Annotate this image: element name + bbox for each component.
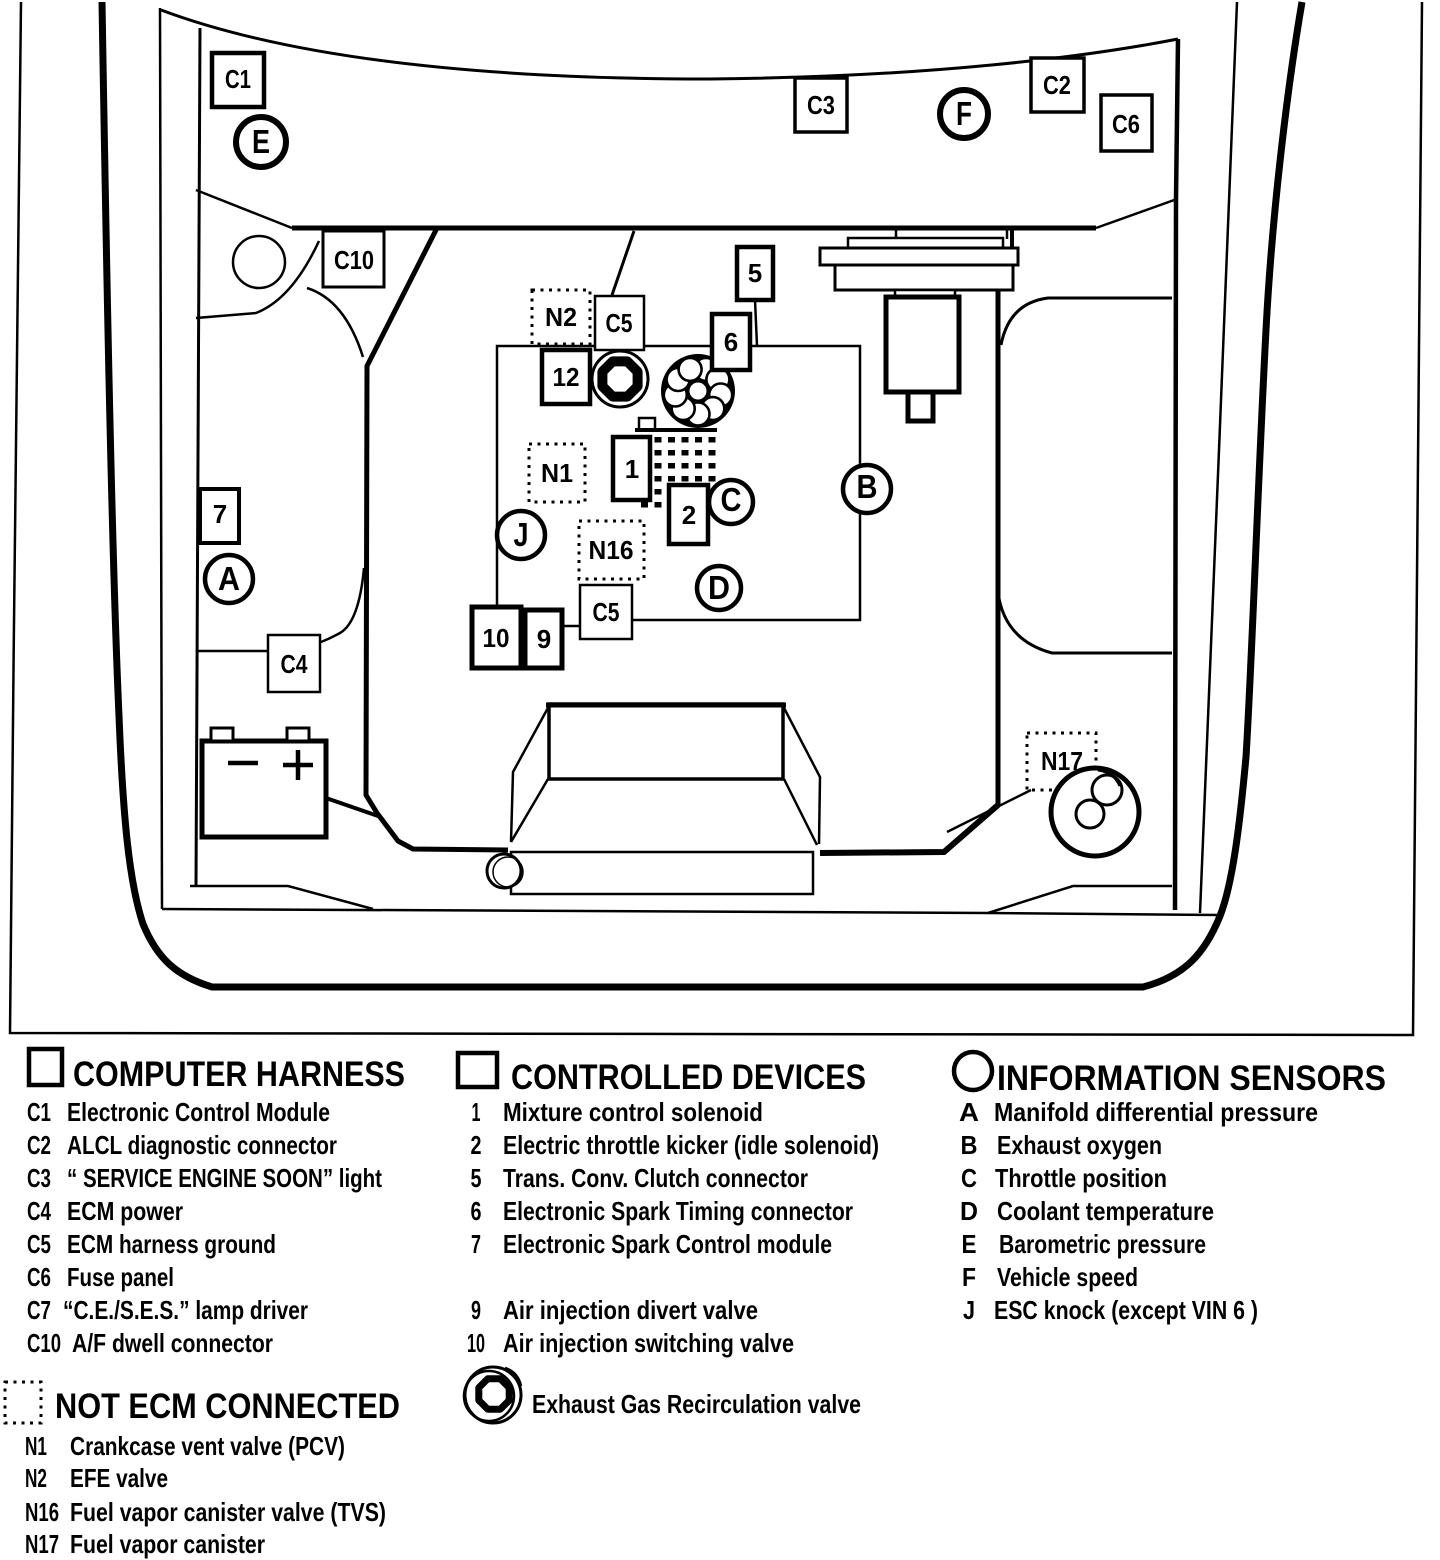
svg-text:2: 2 bbox=[682, 500, 696, 530]
svg-text:N2: N2 bbox=[25, 1463, 47, 1493]
svg-text:C4: C4 bbox=[27, 1196, 51, 1226]
svg-text:D: D bbox=[708, 569, 730, 606]
svg-text:5: 5 bbox=[471, 1163, 482, 1193]
svg-text:C6: C6 bbox=[1112, 109, 1140, 139]
svg-text:C: C bbox=[961, 1163, 977, 1193]
svg-text:Fuse panel: Fuse panel bbox=[67, 1262, 174, 1292]
svg-text:N2: N2 bbox=[545, 302, 577, 332]
svg-text:COMPUTER HARNESS: COMPUTER HARNESS bbox=[73, 1055, 405, 1094]
svg-text:10: 10 bbox=[483, 623, 510, 653]
svg-text:C10: C10 bbox=[334, 245, 374, 275]
svg-text:C3: C3 bbox=[807, 90, 835, 120]
svg-text:7: 7 bbox=[213, 499, 227, 529]
svg-text:E: E bbox=[962, 1229, 977, 1259]
svg-text:A/F dwell connector: A/F dwell connector bbox=[72, 1328, 273, 1358]
svg-text:A: A bbox=[218, 560, 240, 597]
svg-text:12: 12 bbox=[553, 362, 580, 392]
svg-text:2: 2 bbox=[471, 1130, 482, 1160]
svg-text:Coolant temperature: Coolant temperature bbox=[997, 1196, 1214, 1226]
svg-text:Throttle position: Throttle position bbox=[995, 1163, 1167, 1193]
svg-text:A: A bbox=[959, 1097, 979, 1127]
svg-text:E: E bbox=[252, 123, 270, 160]
svg-text:C5: C5 bbox=[593, 597, 620, 627]
svg-text:N17: N17 bbox=[25, 1529, 59, 1559]
svg-text:Electronic Spark Control modul: Electronic Spark Control module bbox=[503, 1229, 832, 1259]
svg-text:C10: C10 bbox=[27, 1328, 61, 1358]
svg-text:5: 5 bbox=[748, 258, 762, 288]
svg-text:N1: N1 bbox=[25, 1431, 47, 1461]
svg-text:7: 7 bbox=[471, 1229, 481, 1259]
svg-text:Air injection switching valve: Air injection switching valve bbox=[503, 1328, 794, 1358]
svg-text:C1: C1 bbox=[27, 1097, 51, 1127]
svg-text:Trans. Conv. Clutch connector: Trans. Conv. Clutch connector bbox=[503, 1163, 808, 1193]
svg-text:C5: C5 bbox=[27, 1229, 51, 1259]
svg-text:Vehicle speed: Vehicle speed bbox=[997, 1262, 1138, 1292]
svg-text:Air injection divert valve: Air injection divert valve bbox=[503, 1295, 758, 1325]
svg-text:Mixture control solenoid: Mixture control solenoid bbox=[503, 1097, 763, 1127]
svg-text:C7: C7 bbox=[27, 1295, 51, 1325]
svg-text:INFORMATION SENSORS: INFORMATION SENSORS bbox=[997, 1059, 1386, 1098]
svg-text:NOT ECM CONNECTED: NOT ECM CONNECTED bbox=[55, 1387, 400, 1426]
svg-text:Electronic Spark Timing connec: Electronic Spark Timing connector bbox=[503, 1196, 853, 1226]
svg-text:C2: C2 bbox=[1043, 70, 1071, 100]
svg-text:Crankcase vent valve (PCV): Crankcase vent valve (PCV) bbox=[70, 1431, 345, 1461]
svg-text:Electric throttle kicker (idle: Electric throttle kicker (idle solenoid) bbox=[503, 1130, 879, 1160]
svg-text:6: 6 bbox=[724, 327, 738, 357]
svg-text:N16: N16 bbox=[589, 535, 634, 565]
svg-text:CONTROLLED DEVICES: CONTROLLED DEVICES bbox=[511, 1058, 866, 1097]
svg-text:“C.E./S.E.S.” lamp driver: “C.E./S.E.S.” lamp driver bbox=[63, 1295, 308, 1325]
svg-text:ALCL diagnostic connector: ALCL diagnostic connector bbox=[67, 1130, 337, 1160]
svg-text:J: J bbox=[963, 1295, 975, 1325]
svg-text:ECM harness ground: ECM harness ground bbox=[67, 1229, 276, 1259]
svg-text:9: 9 bbox=[471, 1295, 481, 1325]
svg-text:N16: N16 bbox=[25, 1497, 59, 1527]
svg-text:ESC knock (except VIN 6 ): ESC knock (except VIN 6 ) bbox=[994, 1295, 1258, 1325]
svg-text:“ SERVICE ENGINE SOON” light: “ SERVICE ENGINE SOON” light bbox=[67, 1163, 382, 1193]
svg-text:J: J bbox=[514, 516, 529, 553]
svg-text:B: B bbox=[857, 468, 878, 505]
svg-text:1: 1 bbox=[625, 454, 639, 484]
svg-text:F: F bbox=[956, 95, 972, 132]
svg-text:N1: N1 bbox=[541, 458, 573, 488]
svg-text:Fuel vapor canister valve (TVS: Fuel vapor canister valve (TVS) bbox=[70, 1497, 386, 1527]
svg-text:F: F bbox=[962, 1262, 976, 1292]
svg-text:1: 1 bbox=[472, 1097, 481, 1127]
svg-text:D: D bbox=[960, 1196, 978, 1226]
svg-text:Manifold differential pressure: Manifold differential pressure bbox=[994, 1097, 1318, 1127]
svg-text:9: 9 bbox=[537, 624, 551, 654]
svg-text:Barometric pressure: Barometric pressure bbox=[999, 1229, 1206, 1259]
svg-text:C2: C2 bbox=[27, 1130, 51, 1160]
svg-text:Electronic Control Module: Electronic Control Module bbox=[67, 1097, 330, 1127]
svg-text:EFE valve: EFE valve bbox=[70, 1463, 168, 1493]
svg-text:Exhaust Gas Recirculation valv: Exhaust Gas Recirculation valve bbox=[532, 1389, 861, 1419]
svg-text:C5: C5 bbox=[606, 308, 633, 338]
svg-text:10: 10 bbox=[467, 1328, 485, 1358]
svg-text:C4: C4 bbox=[281, 649, 308, 679]
svg-text:C1: C1 bbox=[225, 64, 251, 94]
svg-text:C6: C6 bbox=[27, 1262, 51, 1292]
svg-text:B: B bbox=[961, 1130, 978, 1160]
svg-text:6: 6 bbox=[471, 1196, 482, 1226]
svg-text:Exhaust oxygen: Exhaust oxygen bbox=[997, 1130, 1162, 1160]
svg-text:Fuel vapor canister: Fuel vapor canister bbox=[70, 1529, 265, 1559]
svg-text:C: C bbox=[721, 481, 742, 518]
svg-text:ECM power: ECM power bbox=[67, 1196, 183, 1226]
svg-text:C3: C3 bbox=[27, 1163, 51, 1193]
